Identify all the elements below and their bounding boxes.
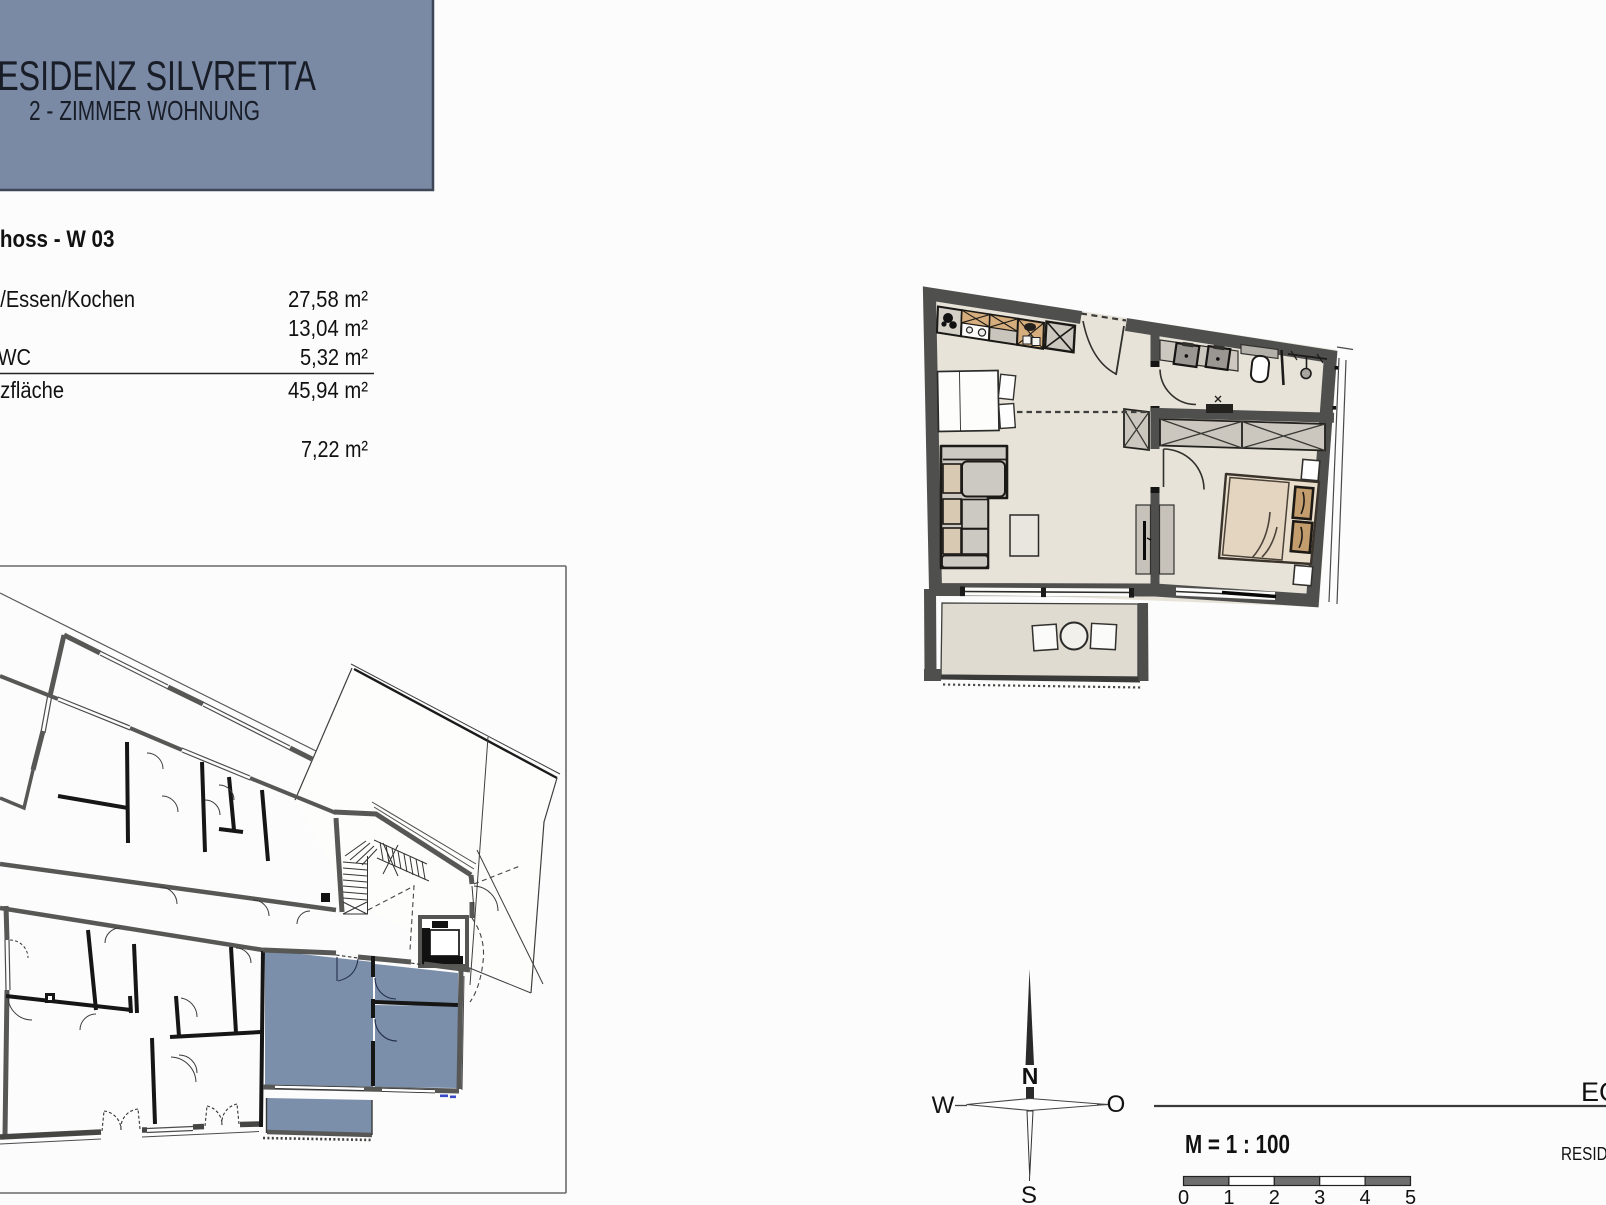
svg-text:4: 4 bbox=[1360, 1187, 1371, 1205]
svg-text:2 - ZIMMER WOHNUNG: 2 - ZIMMER WOHNUNG bbox=[29, 95, 260, 126]
svg-text:0: 0 bbox=[1178, 1187, 1189, 1205]
svg-text:O: O bbox=[1107, 1091, 1126, 1118]
svg-text:W: W bbox=[932, 1092, 955, 1119]
svg-text:EG: EG bbox=[1581, 1077, 1606, 1107]
svg-text:Wohnen/Essen/Kochen: Wohnen/Essen/Kochen bbox=[0, 286, 135, 312]
svg-text:RESIDENZ SILVRETTA: RESIDENZ SILVRETTA bbox=[1561, 1144, 1606, 1164]
svg-text:M = 1 : 100: M = 1 : 100 bbox=[1185, 1129, 1290, 1159]
svg-text:N: N bbox=[1022, 1063, 1039, 1089]
svg-text:5: 5 bbox=[1405, 1187, 1416, 1205]
svg-text:7,22 m²: 7,22 m² bbox=[301, 436, 368, 462]
svg-text:45,94 m²: 45,94 m² bbox=[288, 377, 368, 403]
svg-text:27,58 m²: 27,58 m² bbox=[288, 286, 368, 312]
svg-text:Erdgeschoss - W 03: Erdgeschoss - W 03 bbox=[0, 226, 115, 253]
svg-text:13,04 m²: 13,04 m² bbox=[288, 315, 368, 341]
svg-text:RESIDENZ SILVRETTA: RESIDENZ SILVRETTA bbox=[0, 52, 316, 99]
svg-text:2: 2 bbox=[1269, 1187, 1280, 1205]
svg-text:1: 1 bbox=[1223, 1187, 1234, 1205]
svg-text:Dusche/WC: Dusche/WC bbox=[0, 344, 31, 370]
svg-text:Nutzfläche: Nutzfläche bbox=[0, 377, 64, 403]
svg-text:3: 3 bbox=[1314, 1187, 1325, 1205]
svg-text:S: S bbox=[1021, 1182, 1037, 1205]
svg-text:5,32 m²: 5,32 m² bbox=[300, 344, 368, 370]
